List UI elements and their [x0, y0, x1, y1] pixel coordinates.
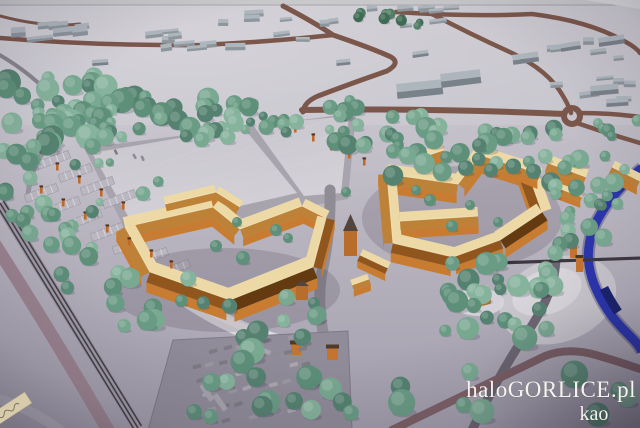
- watermark-author: kao: [580, 403, 609, 425]
- model-photo: haloGORLICE.pl kao: [0, 0, 640, 428]
- watermark-site: haloGORLICE.pl: [466, 377, 636, 402]
- architectural-model-scene: haloGORLICE.pl kao: [0, 0, 640, 428]
